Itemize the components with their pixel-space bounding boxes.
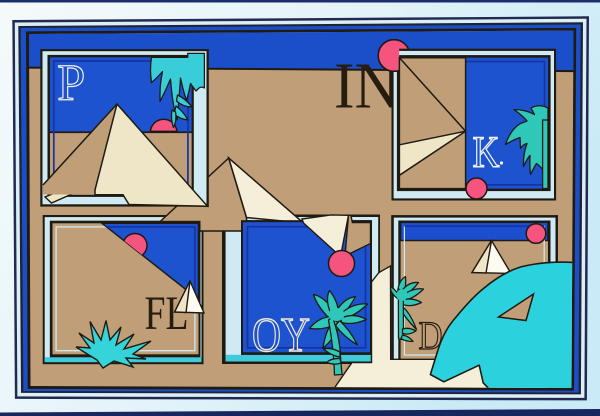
svg-text:OY: OY — [252, 307, 310, 362]
svg-text:K: K — [473, 128, 500, 177]
svg-text:P: P — [57, 55, 85, 112]
svg-text:FL: FL — [145, 287, 189, 340]
